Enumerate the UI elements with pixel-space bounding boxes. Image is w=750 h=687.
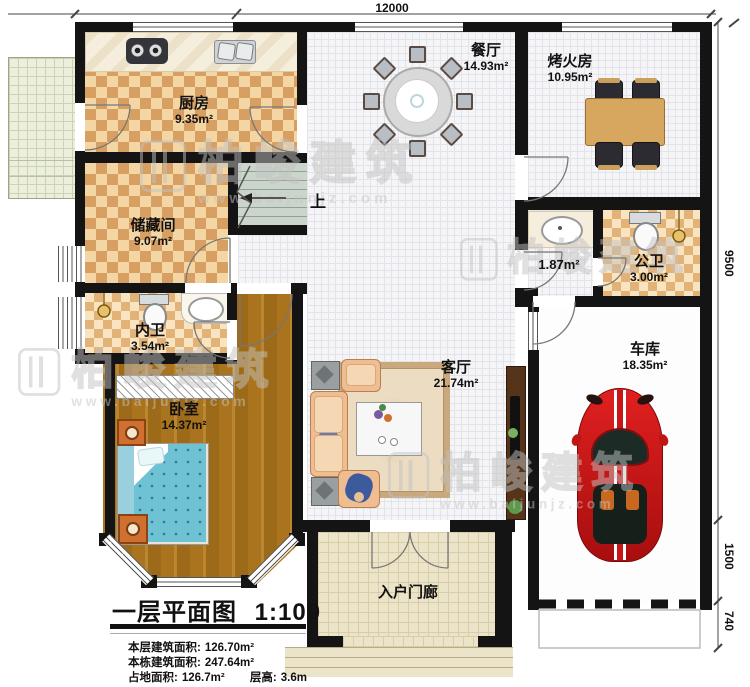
stat-label: 本栋建筑面积: [128,657,201,669]
room-area: 3.54m² [100,340,200,353]
floor-plan: 柏峻建筑 www.baijunjz.com 柏峻建筑 柏峻建筑 www.baij… [0,0,750,687]
stat-footprint-height: 占地面积:126.7m² 层高:3.6m [128,669,307,685]
stat-value: 247.64m² [205,657,254,669]
stat-value: 126.70m² [205,642,254,654]
stairs-direction [237,166,286,228]
stairs-up-label: 上 [310,188,326,212]
stat-floor-area: 本层建筑面积:126.70m² [128,639,254,655]
room-area: 9.35m² [144,113,244,126]
stat-label: 本层建筑面积: [128,642,201,654]
room-label-storage: 储藏间 9.07m² [103,218,203,248]
room-label-public-bath: 公卫 3.00m² [609,254,689,284]
room-area: 18.35m² [595,359,695,372]
room-name: 内卫 [100,323,200,340]
room-name: 烤火房 [520,54,620,71]
room-area: 9.07m² [103,235,203,248]
stat-label: 层高: [250,672,277,684]
room-label-porch: 入户门廊 [348,585,468,602]
stat-building-area: 本栋建筑面积:247.64m² [128,654,254,670]
stat-label: 占地面积: [128,672,178,684]
room-name: 厨房 [144,96,244,113]
room-area: 21.74m² [406,377,506,390]
room-name: 车库 [595,342,695,359]
room-name: 入户门廊 [348,585,468,602]
room-label-living: 客厅 21.74m² [406,360,506,390]
room-area: 1.87m² [519,258,599,273]
room-label-bedroom: 卧室 14.37m² [134,402,234,432]
dimension-right-9500: 9500 [722,250,736,277]
room-label-garage: 车库 18.35m² [595,342,695,372]
title-rule-thin [110,633,306,634]
plan-scale: 1:100 [255,599,321,626]
title-rule [110,624,306,629]
plan-title: 一层平面图 1:100 [112,592,321,627]
room-label-inner-bath: 内卫 3.54m² [100,323,200,353]
room-name: 客厅 [406,360,506,377]
room-area: 3.00m² [609,271,689,284]
room-label-kitchen: 厨房 9.35m² [144,96,244,126]
room-label-lobby: 1.87m² [519,258,599,273]
stat-value: 3.6m [281,672,307,684]
dimension-top: 12000 [362,1,422,15]
room-name: 卧室 [134,402,234,419]
dimension-right-1500: 1500 [722,543,736,570]
room-name: 储藏间 [103,218,203,235]
dimension-right-740: 740 [722,611,736,631]
room-area: 10.95m² [520,71,620,84]
room-area: 14.37m² [134,419,234,432]
garage-door-dashed [539,604,700,648]
plan-title-text: 一层平面图 [112,599,237,626]
stat-value: 126.7m² [182,672,225,684]
room-name: 公卫 [609,254,689,271]
room-label-fire-lounge: 烤火房 10.95m² [520,54,620,84]
